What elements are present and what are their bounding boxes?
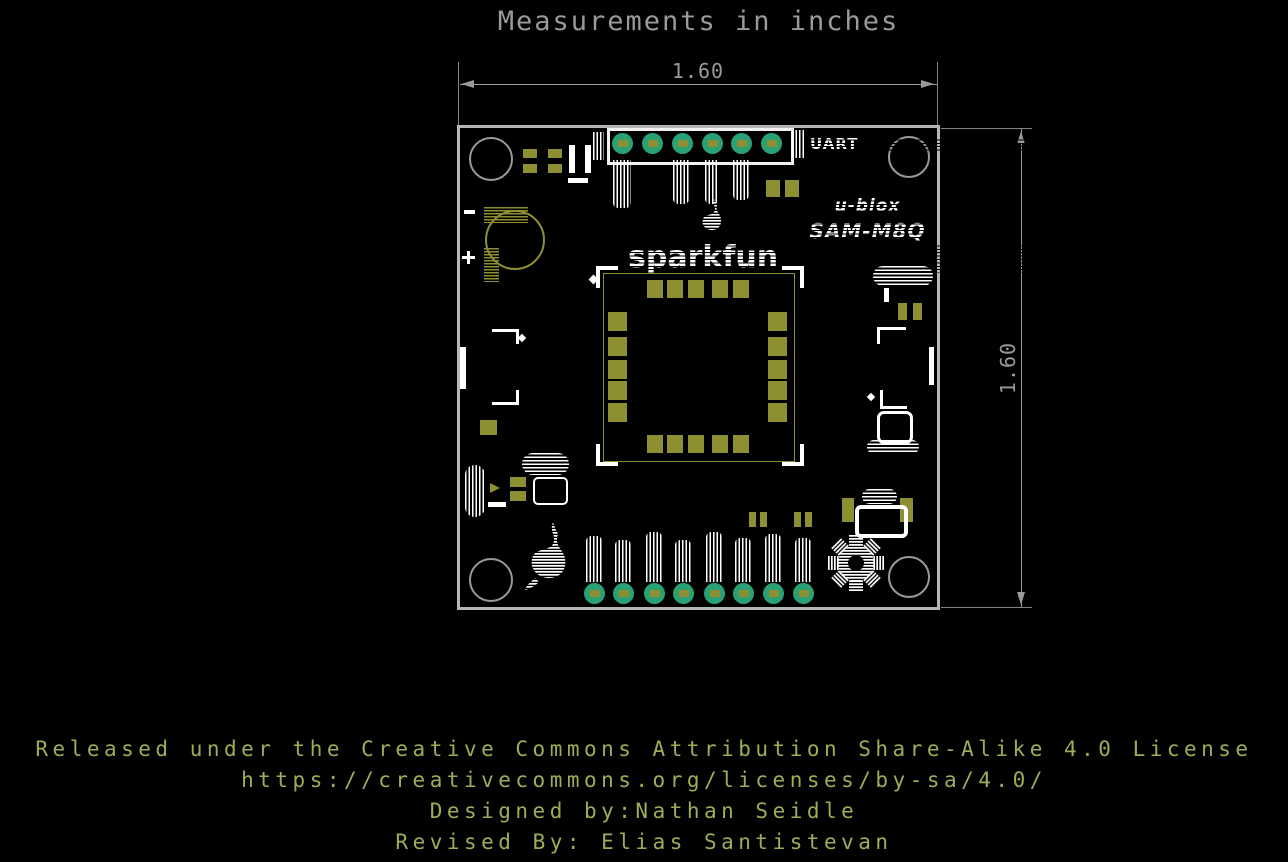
module-model-text: SAM-M8Q [810,221,926,241]
pcb-board-outline: UART sparkfun u-blox SAM-M8Q [457,125,940,610]
pin-label-flag [733,160,749,200]
height-extension-line-top [941,128,1032,129]
width-extension-line-right [937,62,938,125]
pin-label-flag [735,538,751,582]
width-dimension-label: 1.60 [650,59,746,83]
component-outline [855,505,908,538]
ic-pad [647,435,663,453]
ic-pad [712,280,728,298]
ic-pad [712,435,728,453]
bottom-pin-pad-2 [613,583,634,604]
pin-label-flag [593,132,604,160]
silkscreen-bracket [880,390,907,409]
silkscreen-bracket [492,390,519,405]
pin-label-flag [675,540,691,582]
ic-pad [733,280,749,298]
smd-pad [785,180,799,197]
minus-symbol [464,210,475,214]
ic-pad [667,280,683,298]
mounting-hole-top-left [469,137,513,181]
pin-label-flag [615,540,631,582]
width-extension-line-left [458,62,459,125]
footer-license-block: Released under the Creative Commons Attr… [0,734,1288,858]
pin-label-flag [765,534,781,582]
top-pin-pad-5 [731,133,752,154]
silkscreen-bar [488,502,506,507]
mounting-hole-bottom-right [888,556,930,598]
license-line-2: https://creativecommons.org/licenses/by-… [0,765,1288,796]
smd-pad [749,512,756,527]
smd-pad [766,180,780,197]
ic-pad [647,280,663,298]
smd-pad [548,164,562,173]
ic-pad [768,360,787,379]
ic-pad [768,403,787,422]
smd-pad [510,491,526,501]
component-outline [533,477,568,505]
smd-pad [794,512,801,527]
license-line-3: Designed by:Nathan Seidle [0,796,1288,827]
gear-icon [825,535,887,591]
pin-label-flag [646,532,662,582]
battery-hatch-area [484,207,528,223]
width-arrow-right-icon [921,80,934,88]
silkscreen-bar [460,347,466,389]
smd-pad [548,149,562,158]
silkscreen-bracket [877,327,906,344]
silkscreen-bar [884,288,889,302]
ic-pad [688,435,704,453]
diode-symbol [490,483,500,493]
ic-corner-bracket [596,266,618,288]
top-pin-pad-1 [612,133,633,154]
pin-label-flag [792,130,805,158]
pin-label-flag [795,538,811,582]
ic-pad [608,337,627,356]
width-dimension-line [460,84,937,85]
license-line-4: Revised By: Elias Santistevan [0,827,1288,858]
height-arrow-bottom-icon [1017,592,1025,605]
silkscreen-label [522,453,569,475]
ic-pad [608,360,627,379]
ic-footprint-outline [603,273,795,462]
silkscreen-dot [518,334,526,342]
width-arrow-left-icon [461,80,474,88]
silkscreen-label [867,440,919,454]
ic-pad [608,381,627,400]
height-dimension-label: 1.60 [985,342,1031,394]
ic-pad [768,312,787,331]
flame-logo-icon [523,520,571,592]
bottom-pin-pad-6 [733,583,754,604]
smd-pad [480,420,497,435]
mounting-hole-bottom-left [469,558,513,602]
ic-corner-bracket [782,444,804,466]
bottom-pin-pad-1 [584,583,605,604]
module-brand-text: u-blox [835,198,901,215]
top-pin-pad-6 [761,133,782,154]
license-line-1: Released under the Creative Commons Attr… [0,734,1288,765]
smd-pad [805,512,812,527]
top-pin-pad-4 [702,133,723,154]
smd-pad [523,149,537,158]
silkscreen-bar [568,178,588,183]
silkscreen-bar [569,145,575,173]
ic-pad [608,312,627,331]
battery-hatch-area [484,248,499,282]
height-extension-line-bottom [941,607,1032,608]
silkscreen-dot [867,393,875,401]
pin-label-flag [673,160,689,204]
ic-pad [688,280,704,298]
pcb-dimension-drawing: { "title": "Measurements in inches", "di… [0,0,1288,862]
bottom-pin-pad-5 [704,583,725,604]
smd-pad [510,477,526,487]
bottom-pin-pad-3 [644,583,665,604]
ic-pad [667,435,683,453]
ic-corner-bracket [596,444,618,466]
ic-corner-bracket [782,266,804,288]
module-name: u-blox SAM-M8Q [800,196,935,242]
bottom-pin-pad-8 [793,583,814,604]
ic-pad [733,435,749,453]
ic-pad [768,337,787,356]
uart-label: UART [810,137,1287,152]
top-pin-pad-3 [672,133,693,154]
flame-icon [698,199,724,231]
silkscreen-bar [585,145,591,173]
pin-label-flag [706,532,722,582]
pin-label-flag [613,160,631,208]
bottom-pin-pad-4 [673,583,694,604]
smd-pad [523,164,537,173]
smd-pad [913,303,922,320]
top-pin-pad-2 [642,133,663,154]
page-title: Measurements in inches [457,6,940,37]
ic-pad [608,403,627,422]
pin-label-flag [586,536,602,582]
smd-pad [898,303,907,320]
silkscreen-label [862,489,897,504]
ic-pad [768,381,787,400]
bottom-pin-pad-7 [763,583,784,604]
pin-label-flag [705,160,719,204]
smd-pad [760,512,767,527]
silkscreen-label [873,266,933,286]
sparkfun-logo-text: sparkfun [628,243,1105,273]
plus-symbol [462,251,475,264]
silkscreen-bracket [492,329,519,344]
silkscreen-label [465,465,485,517]
silkscreen-bar [929,347,934,385]
smd-pad [842,498,854,522]
